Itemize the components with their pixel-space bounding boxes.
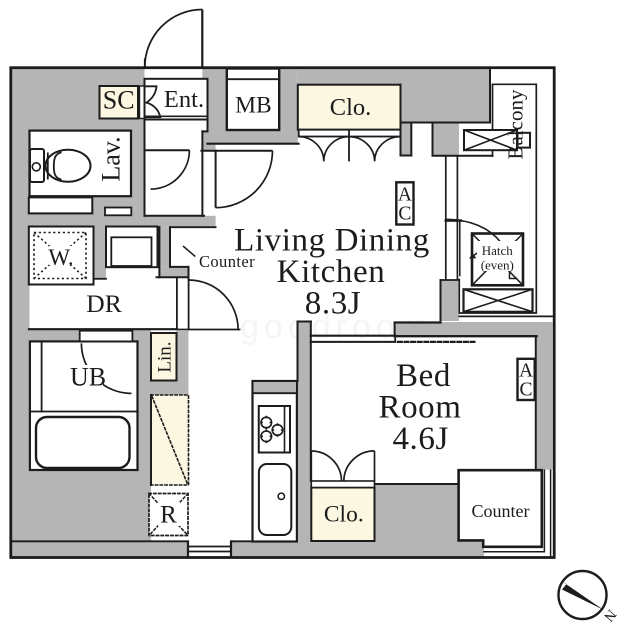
svg-text:UB: UB xyxy=(70,363,106,392)
svg-text:Ent.: Ent. xyxy=(164,86,204,113)
svg-text:Clo.: Clo. xyxy=(330,94,372,121)
svg-text:W.: W. xyxy=(48,245,73,270)
svg-text:R: R xyxy=(160,502,177,529)
svg-text:Hatch: Hatch xyxy=(482,243,514,258)
svg-text:Counter: Counter xyxy=(199,252,255,271)
svg-text:8.3J: 8.3J xyxy=(305,286,362,322)
svg-text:Counter: Counter xyxy=(472,501,530,521)
svg-text:A: A xyxy=(398,184,412,205)
svg-text:A: A xyxy=(519,360,533,381)
svg-text:MB: MB xyxy=(235,93,272,119)
svg-text:4.6J: 4.6J xyxy=(392,421,449,457)
svg-text:DR: DR xyxy=(86,289,121,318)
svg-text:Lin.: Lin. xyxy=(155,341,176,372)
svg-text:Lav.: Lav. xyxy=(97,136,126,181)
svg-text:C: C xyxy=(519,380,532,401)
svg-text:Clo.: Clo. xyxy=(324,502,364,528)
svg-text:C: C xyxy=(398,204,411,225)
svg-text:SC: SC xyxy=(103,86,135,115)
svg-text:Balcony: Balcony xyxy=(504,89,528,159)
svg-text:(even): (even) xyxy=(481,257,514,272)
